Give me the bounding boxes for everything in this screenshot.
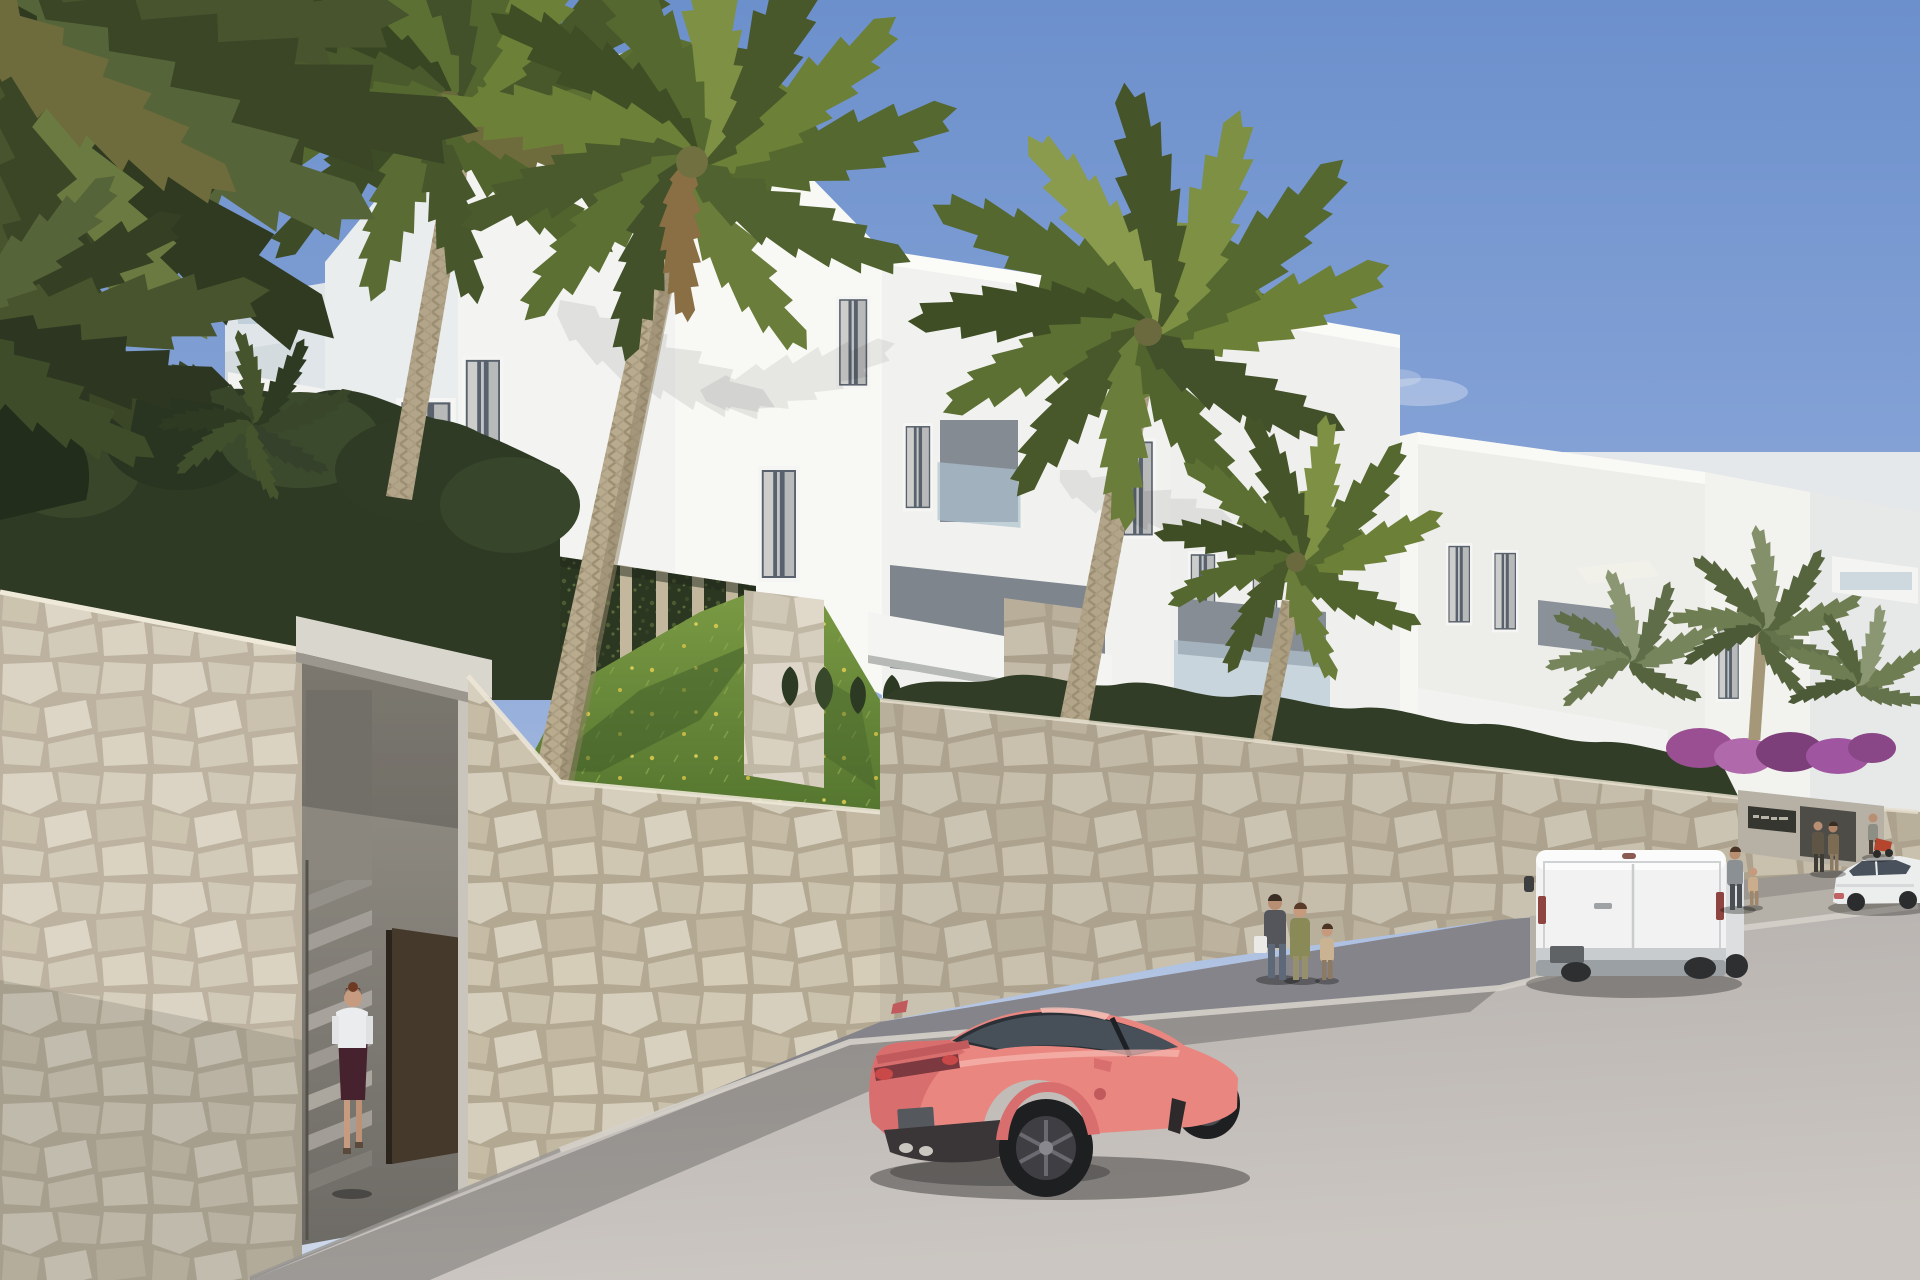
scene-image: Sunny architectural rendering of a white… bbox=[0, 0, 1920, 1280]
white-van bbox=[1524, 850, 1748, 998]
bougainvillea bbox=[1666, 728, 1896, 774]
entrance-door bbox=[392, 928, 462, 1164]
render-canvas bbox=[0, 0, 1920, 1280]
garden-entrance bbox=[296, 616, 492, 1245]
